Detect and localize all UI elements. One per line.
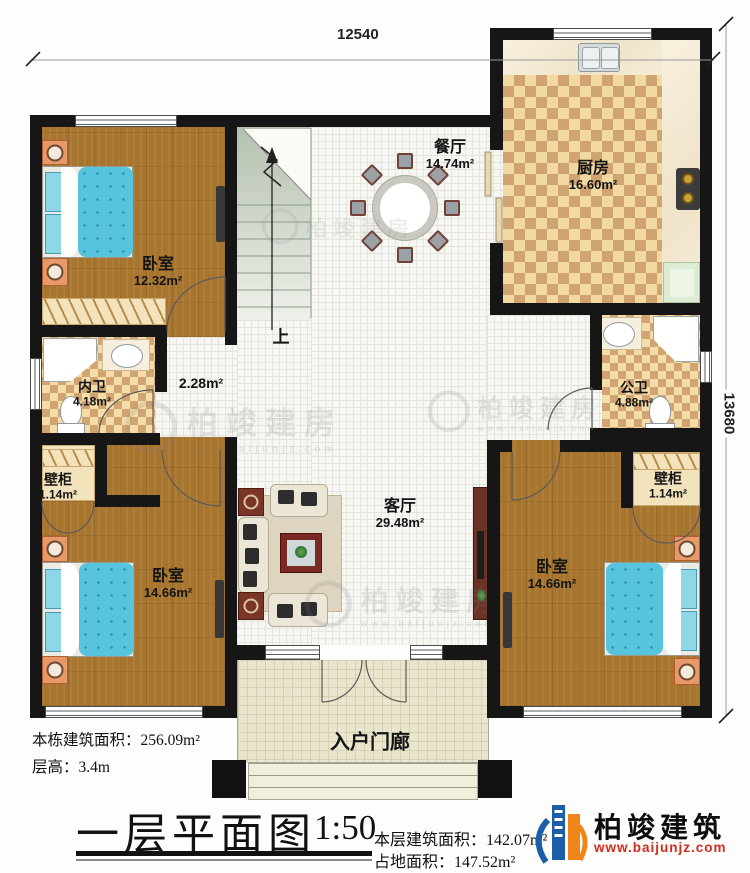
- plant: [477, 590, 486, 601]
- wall: [30, 325, 167, 337]
- nightstand: [42, 536, 68, 562]
- pillow: [45, 214, 62, 254]
- title-underline: [76, 851, 372, 856]
- dining-chair: [444, 200, 460, 216]
- fridge-top: [670, 269, 694, 297]
- room-label-inner-bath: 内卫4.18m²: [73, 379, 111, 408]
- wall: [490, 303, 712, 315]
- floor-area-note: 本层建筑面积：142.07m²: [374, 826, 547, 850]
- room-label-bedroom-bottom-right: 卧室14.66m²: [528, 559, 576, 591]
- wall: [630, 440, 712, 452]
- side-table: [238, 488, 264, 516]
- nightstand: [674, 658, 700, 685]
- cushion: [243, 524, 257, 540]
- burner: [682, 173, 694, 185]
- dining-chair: [397, 247, 413, 263]
- staircase: [237, 127, 311, 320]
- room-label-kitchen: 厨房16.60m²: [569, 160, 617, 192]
- coffee-table: [280, 533, 322, 573]
- vanity-counter: [102, 339, 150, 371]
- wall: [560, 440, 630, 452]
- pillow: [680, 611, 697, 651]
- wall: [621, 452, 633, 508]
- wall: [487, 452, 500, 718]
- room-label-closet-right: 壁柜1.14m²: [649, 471, 687, 500]
- window: [700, 351, 712, 383]
- cushion: [277, 604, 293, 618]
- cushion: [278, 490, 294, 504]
- wall: [590, 428, 712, 440]
- nightstand: [674, 536, 700, 561]
- tv: [503, 592, 512, 648]
- nightstand: [42, 140, 68, 165]
- drawing-scale: 1:50: [314, 808, 376, 848]
- nightstand: [42, 258, 68, 286]
- bed: [42, 166, 133, 258]
- fridge: [663, 262, 700, 303]
- porch-steps: [248, 762, 478, 800]
- cushion: [301, 492, 317, 506]
- tv: [215, 580, 224, 638]
- pillow: [45, 612, 62, 652]
- window: [523, 706, 682, 718]
- brand-website: www.baijunjz.com: [594, 840, 727, 855]
- wardrobe-strip: [42, 298, 166, 325]
- wall: [95, 495, 160, 507]
- wall: [590, 315, 602, 390]
- room-label-dining: 餐厅14.74m²: [426, 139, 474, 171]
- window: [410, 645, 443, 660]
- room-label-public-bath: 公卫4.88m²: [615, 380, 653, 409]
- stairs-up-label: 上: [273, 323, 290, 348]
- dining-chair: [397, 153, 413, 169]
- window: [45, 706, 203, 718]
- porch-pillar-left: [212, 760, 246, 798]
- wall: [30, 433, 160, 445]
- land-area-note: 占地面积：147.52m²: [374, 848, 515, 872]
- wall: [30, 115, 42, 718]
- porch-label: 入户门廊: [330, 726, 410, 755]
- sink: [603, 322, 635, 347]
- bed-quilt: [78, 167, 133, 257]
- wall: [237, 645, 265, 660]
- brand-logo-icon: [534, 800, 588, 866]
- wall: [487, 440, 512, 452]
- bed: [604, 562, 700, 656]
- dimension-width: 12540: [334, 26, 382, 43]
- plant: [295, 546, 307, 558]
- sofa-love-top: [270, 484, 328, 517]
- title-underline-thin: [76, 859, 372, 861]
- bed-quilt: [606, 563, 663, 655]
- kitchen-sink: [578, 43, 620, 72]
- cushion: [243, 571, 257, 587]
- wall: [155, 337, 167, 392]
- dimension-height: 13680: [720, 390, 737, 438]
- wall: [443, 645, 487, 660]
- cushion: [301, 602, 317, 616]
- bed-quilt: [79, 563, 134, 656]
- room-label-closet-left: 壁柜1.14m²: [39, 472, 77, 501]
- wall: [225, 437, 237, 718]
- tv: [216, 186, 225, 242]
- sofa-love-bottom: [268, 593, 328, 627]
- side-table: [238, 592, 264, 620]
- dining-chair: [350, 200, 366, 216]
- room-label-bedroom-top-left: 卧室12.32m²: [134, 256, 182, 288]
- bed: [42, 562, 134, 657]
- sofa-main: [238, 517, 269, 593]
- dining-table: [373, 176, 437, 240]
- total-area-note: 本栋建筑面积：256.09m²: [32, 728, 200, 750]
- closet-right-hangers: [633, 453, 700, 470]
- sink-basin: [601, 47, 619, 69]
- pillow: [45, 172, 62, 212]
- floor-plan-canvas: 柏竣建房 www.baijunjz.com 柏竣建房 www.baijunjz.…: [0, 0, 750, 873]
- sink: [111, 344, 143, 368]
- wall: [225, 115, 237, 345]
- closet-left-hangers: [42, 449, 95, 467]
- window: [75, 115, 177, 127]
- room-label-living: 客厅29.48m²: [376, 498, 424, 530]
- pillow: [45, 569, 62, 609]
- window: [30, 358, 42, 410]
- stove: [676, 168, 700, 210]
- floor-height-note: 层高：3.4m: [32, 755, 110, 777]
- hall-area-label: 2.28m²: [179, 375, 223, 391]
- pillow: [680, 569, 697, 609]
- window: [553, 28, 652, 40]
- east-corridor-floor: [487, 315, 602, 440]
- porch-pillar-right: [478, 760, 512, 798]
- burner: [682, 192, 694, 204]
- sink-basin: [582, 47, 600, 69]
- tv: [477, 531, 484, 579]
- room-label-bedroom-bottom-left: 卧室14.66m²: [144, 568, 192, 600]
- nightstand: [42, 656, 68, 684]
- cushion: [245, 548, 259, 564]
- wall: [490, 28, 503, 150]
- wall: [490, 243, 503, 305]
- window: [265, 645, 320, 660]
